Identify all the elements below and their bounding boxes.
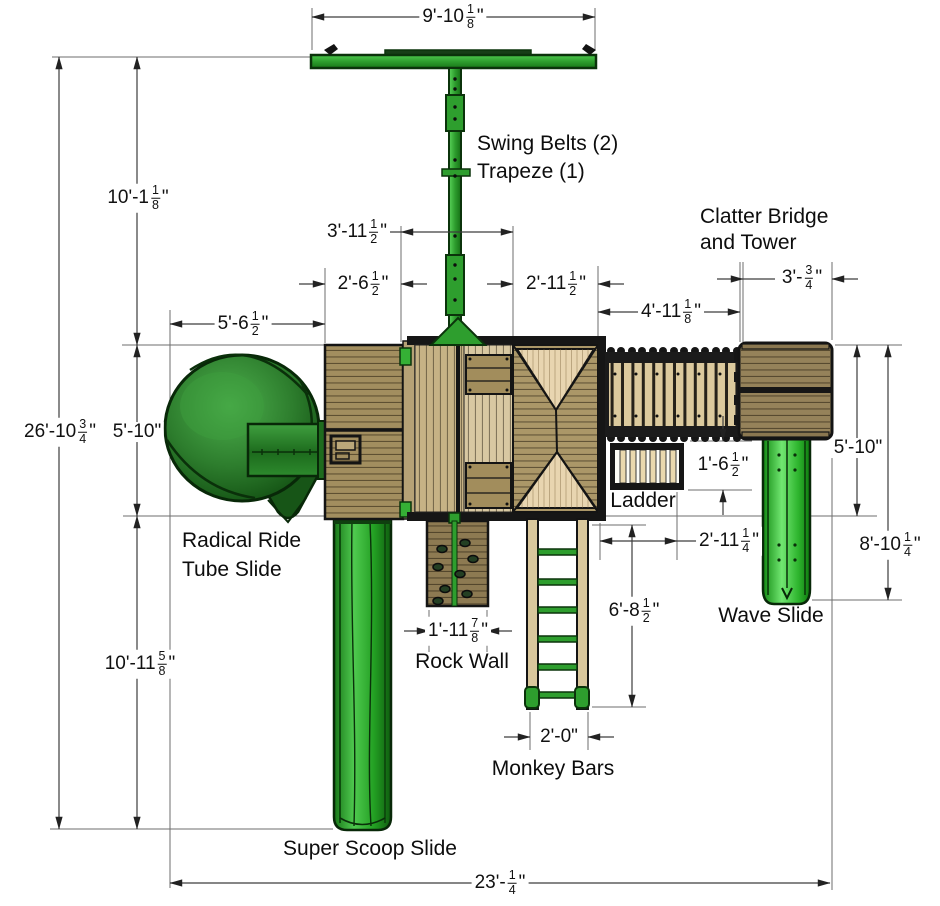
swing-beam-assembly <box>311 44 596 345</box>
dim-beam-width: 9'-1018" <box>419 3 486 32</box>
bridge-tower <box>734 343 832 439</box>
dim-monkey-length: 6'-812" <box>606 597 663 626</box>
dim-wave-length: 8'-1014" <box>856 531 923 560</box>
label-rock-wall: Rock Wall <box>415 650 509 674</box>
label-radical-line1: Radical Ride <box>182 529 301 553</box>
dim-deck-mid: 3'-1112" <box>324 218 390 247</box>
dim-total-width: 23'-14" <box>472 869 529 898</box>
label-monkey-bars: Monkey Bars <box>492 757 615 781</box>
dim-fort-offset: 5'-612" <box>215 310 272 339</box>
label-trapeze: Trapeze (1) <box>477 160 585 184</box>
wave-slide <box>761 434 812 604</box>
dim-monkey-width: 2'-0" <box>537 727 581 747</box>
clatter-bridge <box>605 347 741 442</box>
label-super-scoop: Super Scoop Slide <box>283 837 457 861</box>
label-wave-slide: Wave Slide <box>718 604 823 628</box>
label-swing-belts: Swing Belts (2) <box>477 132 618 156</box>
deck-panel-bottom <box>466 463 511 508</box>
deck-panel-top <box>466 355 511 394</box>
dim-ladder-depth: 1'-612" <box>695 451 752 480</box>
dim-tower-width: 3'-34" <box>779 264 825 293</box>
plan-drawing-canvas <box>0 0 940 906</box>
swing-hanger-right <box>582 44 596 55</box>
label-clatter-line2: and Tower <box>700 231 797 255</box>
tube-slide <box>165 355 328 522</box>
dim-total-height: 26'-1034" <box>21 418 99 447</box>
label-radical-line2: Tube Slide <box>182 558 282 582</box>
playset-plan-diagram: 9'-1018" 10'-118" 26'-1034" 3'-1112" 2'-… <box>0 0 940 906</box>
dim-lower-left: 10'-1158" <box>102 650 179 679</box>
swing-hanger-left <box>324 44 338 55</box>
dim-rockwall-width: 1'-1178" <box>425 617 491 646</box>
dim-tower-depth: 5'-10" <box>831 438 885 458</box>
fort-deck <box>325 336 606 521</box>
dim-fort-depth: 5'-10" <box>110 422 164 442</box>
dim-ladder-offset: 2'-1114" <box>696 527 762 556</box>
dim-swing-drop: 10'-118" <box>104 184 171 213</box>
super-scoop-slide <box>334 517 391 830</box>
label-clatter-line1: Clatter Bridge <box>700 205 828 229</box>
pole-gusset <box>431 318 485 345</box>
label-ladder: Ladder <box>610 489 675 513</box>
ladder <box>610 443 684 490</box>
monkey-bars <box>525 514 589 709</box>
dim-deck-left: 2'-612" <box>335 270 392 299</box>
dim-deck-roof: 2'-1112" <box>523 270 589 299</box>
dim-bridge-length: 4'-1118" <box>638 298 704 327</box>
rock-wall <box>427 513 488 606</box>
